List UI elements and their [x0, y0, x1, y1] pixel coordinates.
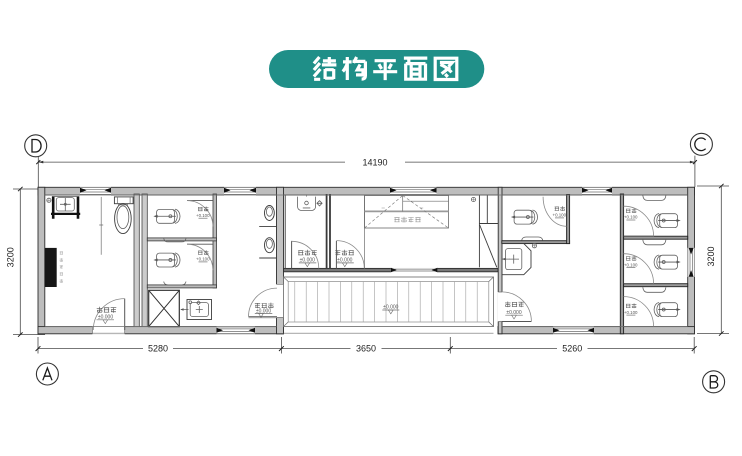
svg-text:+0.100: +0.100 — [624, 215, 638, 220]
svg-text:3200: 3200 — [706, 246, 716, 266]
svg-text:+0.100: +0.100 — [196, 213, 210, 218]
svg-text:5280: 5280 — [148, 344, 168, 354]
svg-text:+0.100: +0.100 — [196, 257, 210, 262]
svg-text:+0.100: +0.100 — [624, 310, 638, 315]
svg-text:+0.100: +0.100 — [553, 213, 567, 218]
svg-text:5260: 5260 — [562, 344, 582, 354]
svg-text:3650: 3650 — [356, 344, 376, 354]
svg-text:+0.100: +0.100 — [624, 262, 638, 267]
svg-text:14190: 14190 — [362, 157, 387, 167]
svg-text:3200: 3200 — [6, 247, 16, 267]
